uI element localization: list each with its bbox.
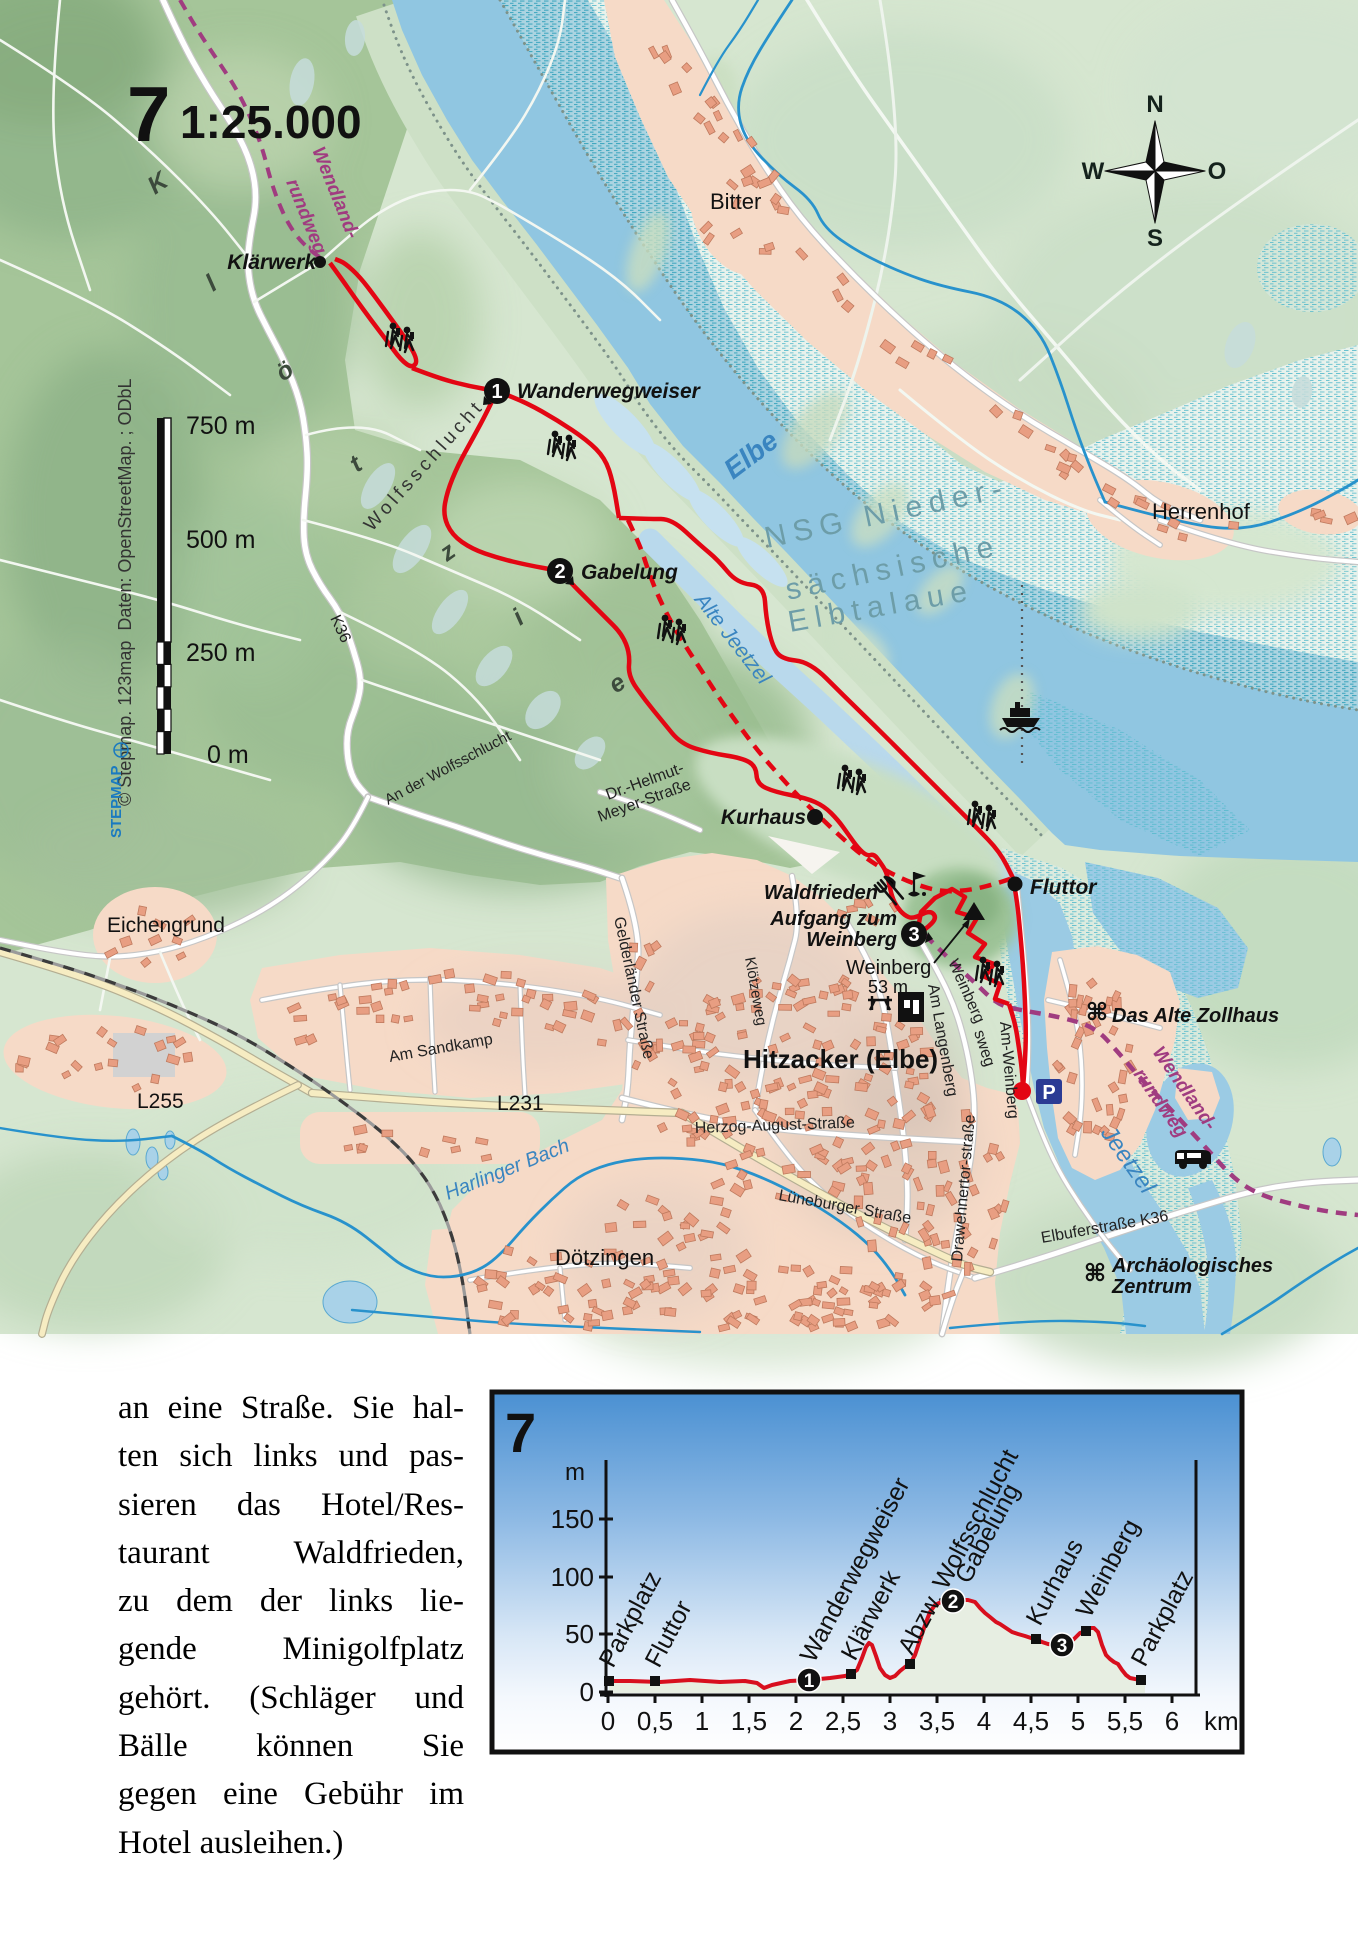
svg-text:1:25.000: 1:25.000 [180,96,362,148]
svg-text:5,5: 5,5 [1107,1706,1143,1736]
svg-text:Eichengrund: Eichengrund [107,914,225,937]
svg-text:4,5: 4,5 [1013,1706,1049,1736]
svg-text:1: 1 [804,1671,815,1692]
svg-text:P: P [1042,1082,1055,1104]
svg-text:Gabelung: Gabelung [581,561,678,584]
svg-text:3: 3 [883,1706,897,1736]
svg-text:Herrenhof: Herrenhof [1152,499,1251,524]
svg-text:150: 150 [551,1504,594,1534]
svg-text:Das Alte Zollhaus: Das Alte Zollhaus [1112,1005,1279,1027]
svg-text:km: km [1204,1706,1239,1736]
svg-text:Dötzingen: Dötzingen [555,1245,654,1270]
svg-text:6: 6 [1165,1706,1179,1736]
svg-text:0: 0 [580,1677,594,1707]
svg-text:1: 1 [491,381,502,403]
svg-text:S: S [1147,225,1163,252]
svg-text:2: 2 [789,1706,803,1736]
svg-text:Zentrum: Zentrum [1111,1276,1192,1298]
svg-text:Klärwerk: Klärwerk [227,251,317,274]
svg-text:Kurhaus: Kurhaus [721,806,806,829]
svg-text:1: 1 [695,1706,709,1736]
svg-text:STEPMAP: STEPMAP [108,765,125,838]
svg-text:2: 2 [554,561,565,583]
svg-text:750 m: 750 m [186,412,255,440]
svg-text:Weinberg: Weinberg [846,957,931,979]
svg-text:7: 7 [127,70,170,158]
svg-text:W: W [1082,158,1105,185]
svg-text:3: 3 [908,924,919,946]
svg-text:50: 50 [565,1619,594,1649]
svg-text:Hitzacker (Elbe): Hitzacker (Elbe) [743,1044,938,1074]
svg-text:53 m: 53 m [868,977,908,997]
svg-text:© Stepmap. 123map Daten: Open: © Stepmap. 123map Daten: OpenStreetMap. … [115,379,135,807]
svg-text:500 m: 500 m [186,526,255,554]
svg-text:Weinberg: Weinberg [806,929,897,951]
svg-text:Waldfrieden: Waldfrieden [764,882,878,904]
svg-text:3,5: 3,5 [919,1706,955,1736]
svg-text:Aufgang zum: Aufgang zum [769,908,897,930]
svg-text:7: 7 [505,1401,536,1464]
svg-text:L255: L255 [137,1090,184,1113]
svg-text:Wanderwegweiser: Wanderwegweiser [517,380,702,403]
svg-text:0,5: 0,5 [637,1706,673,1736]
svg-text:Fluttor: Fluttor [1030,876,1098,899]
svg-text:250 m: 250 m [186,639,255,667]
svg-text:Bitter: Bitter [710,189,761,214]
svg-text:3: 3 [1057,1636,1068,1657]
svg-text:1,5: 1,5 [731,1706,767,1736]
svg-text:O: O [1208,158,1227,185]
svg-text:0: 0 [601,1706,615,1736]
svg-text:100: 100 [551,1562,594,1592]
svg-text:Archäologisches: Archäologisches [1111,1255,1273,1277]
svg-text:m: m [565,1459,585,1486]
svg-text:5: 5 [1071,1706,1085,1736]
svg-text:2: 2 [948,1592,959,1613]
svg-text:4: 4 [977,1706,991,1736]
svg-text:N: N [1146,91,1163,118]
svg-text:0 m: 0 m [207,741,249,769]
svg-text:L231: L231 [497,1092,544,1115]
svg-text:2,5: 2,5 [825,1706,861,1736]
